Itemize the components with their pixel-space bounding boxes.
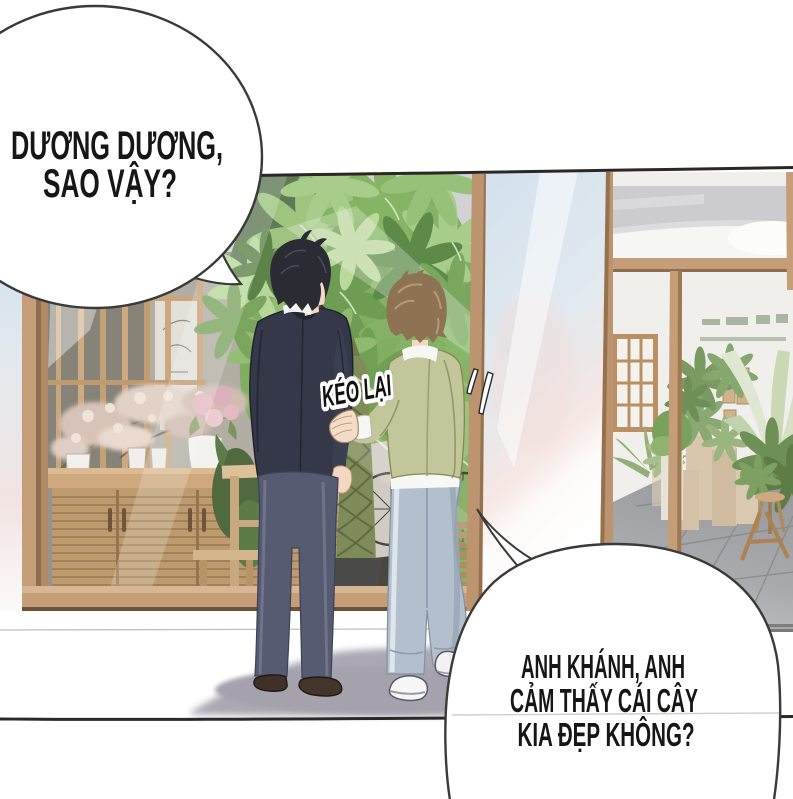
svg-text:ANH KHÁNH, ANH: ANH KHÁNH, ANH	[521, 648, 685, 685]
svg-text:SAO VẬY?: SAO VẬY?	[43, 160, 177, 206]
svg-text:CẢM THẤY CÁI CÂY: CẢM THẤY CÁI CÂY	[510, 682, 698, 719]
svg-text:KIA ĐẸP KHÔNG?: KIA ĐẸP KHÔNG?	[518, 715, 695, 753]
